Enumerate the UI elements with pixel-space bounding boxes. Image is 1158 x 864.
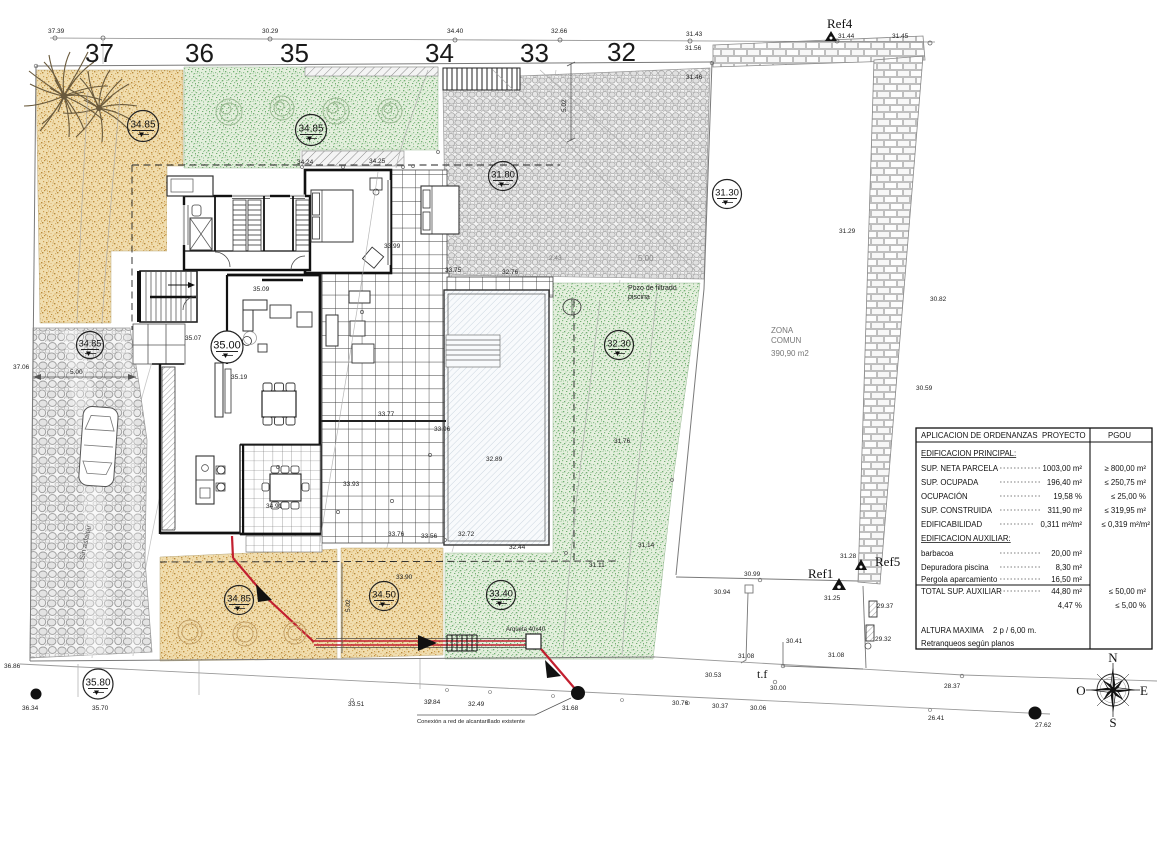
svg-text:30.29: 30.29 <box>262 28 279 35</box>
svg-text:32.30: 32.30 <box>607 339 631 350</box>
svg-text:Depuradora piscina: Depuradora piscina <box>921 563 989 572</box>
svg-text:36.86: 36.86 <box>4 663 21 670</box>
svg-text:33: 33 <box>520 38 549 68</box>
svg-text:34.91: 34.91 <box>266 503 283 510</box>
svg-text:SUP. CONSTRUIDA: SUP. CONSTRUIDA <box>921 506 993 515</box>
svg-text:TOTAL SUP. AUXILIAR: TOTAL SUP. AUXILIAR <box>921 587 1002 596</box>
svg-text:31.68: 31.68 <box>562 705 579 712</box>
svg-text:27.62: 27.62 <box>1035 722 1052 729</box>
svg-text:31.56: 31.56 <box>685 45 702 52</box>
svg-text:34.24: 34.24 <box>297 159 314 166</box>
svg-text:31.28: 31.28 <box>840 553 857 560</box>
svg-text:34.85: 34.85 <box>79 339 102 349</box>
svg-text:32.66: 32.66 <box>551 28 568 35</box>
svg-text:31.08: 31.08 <box>828 652 845 659</box>
svg-text:≤ 319,95 m²: ≤ 319,95 m² <box>1104 506 1146 515</box>
svg-text:5.00: 5.00 <box>70 369 83 376</box>
svg-text:35.19: 35.19 <box>231 374 248 381</box>
svg-text:N: N <box>1108 650 1118 665</box>
svg-text:34: 34 <box>425 38 454 68</box>
svg-text:31.45: 31.45 <box>892 33 909 40</box>
svg-text:PGOU: PGOU <box>1108 431 1131 440</box>
svg-text:31.43: 31.43 <box>686 31 703 38</box>
svg-text:2 p / 6,00 m.: 2 p / 6,00 m. <box>993 626 1036 635</box>
svg-text:30.59: 30.59 <box>916 385 933 392</box>
svg-text:Ref1: Ref1 <box>808 566 833 581</box>
svg-text:5.00: 5.00 <box>638 254 654 263</box>
svg-text:33.96: 33.96 <box>434 426 451 433</box>
svg-text:33.75: 33.75 <box>445 267 462 274</box>
svg-text:29.32: 29.32 <box>875 636 892 643</box>
svg-text:APLICACION DE ORDENANZAS: APLICACION DE ORDENANZAS <box>921 431 1038 440</box>
svg-text:30.00: 30.00 <box>770 685 787 692</box>
svg-text:30.06: 30.06 <box>750 705 767 712</box>
svg-text:PROYECTO: PROYECTO <box>1042 431 1086 440</box>
svg-text:2.43: 2.43 <box>549 255 562 262</box>
svg-text:30.76: 30.76 <box>672 700 689 707</box>
svg-text:5.02: 5.02 <box>345 599 352 612</box>
svg-text:EDIFICACION PRINCIPAL:: EDIFICACION PRINCIPAL: <box>921 449 1016 458</box>
svg-text:≤ 50,00 m²: ≤ 50,00 m² <box>1109 587 1147 596</box>
svg-text:33.76: 33.76 <box>388 531 405 538</box>
svg-text:33.77: 33.77 <box>378 411 395 418</box>
svg-text:Conexión a red de alcantarilla: Conexión a red de alcantarillado existen… <box>417 719 525 725</box>
svg-text:30.53: 30.53 <box>705 672 722 679</box>
svg-text:4,47 %: 4,47 % <box>1058 601 1082 610</box>
svg-text:44,80 m²: 44,80 m² <box>1051 587 1082 596</box>
svg-text:≤ 0,319 m²/m²: ≤ 0,319 m²/m² <box>1102 520 1151 529</box>
svg-text:Arqueta 40x40: Arqueta 40x40 <box>506 627 546 633</box>
svg-text:31.11: 31.11 <box>589 562 605 569</box>
svg-text:OCUPACIÓN: OCUPACIÓN <box>921 492 968 501</box>
svg-text:30.82: 30.82 <box>930 296 947 303</box>
svg-text:Ref4: Ref4 <box>827 16 853 31</box>
svg-text:35: 35 <box>280 38 309 68</box>
svg-text:34.25: 34.25 <box>369 158 386 165</box>
svg-text:34.85: 34.85 <box>298 124 323 135</box>
svg-text:5.02: 5.02 <box>561 99 568 112</box>
svg-text:EDIFICABILIDAD: EDIFICABILIDAD <box>921 520 982 529</box>
svg-text:35.09: 35.09 <box>253 286 270 293</box>
svg-text:31.80: 31.80 <box>491 170 515 181</box>
svg-text:31.44: 31.44 <box>838 33 855 40</box>
svg-text:34.40: 34.40 <box>447 28 464 35</box>
svg-text:Pergola aparcamiento: Pergola aparcamiento <box>921 575 998 584</box>
svg-text:SUP. NETA PARCELA: SUP. NETA PARCELA <box>921 464 999 473</box>
svg-text:34.85: 34.85 <box>227 594 251 605</box>
svg-text:37.06: 37.06 <box>13 364 30 371</box>
svg-text:0,311 m²/m²: 0,311 m²/m² <box>1041 520 1083 529</box>
svg-text:33.93: 33.93 <box>343 481 360 488</box>
svg-text:≤ 250,75 m²: ≤ 250,75 m² <box>1104 478 1146 487</box>
svg-text:35.00: 35.00 <box>213 340 241 352</box>
svg-text:20,00 m²: 20,00 m² <box>1051 549 1082 558</box>
svg-text:30.94: 30.94 <box>714 589 731 596</box>
svg-text:37: 37 <box>85 38 114 68</box>
svg-text:32.72: 32.72 <box>458 531 475 538</box>
svg-text:32.76: 32.76 <box>502 269 519 276</box>
svg-text:Ref5: Ref5 <box>875 554 900 569</box>
svg-text:19,58 %: 19,58 % <box>1053 492 1082 501</box>
svg-text:barbacoa: barbacoa <box>921 549 954 558</box>
svg-text:32.84: 32.84 <box>424 699 441 706</box>
svg-text:28.37: 28.37 <box>944 683 961 690</box>
svg-text:33.40: 33.40 <box>489 589 513 600</box>
svg-text:33.99: 33.99 <box>384 243 401 250</box>
svg-text:30.41: 30.41 <box>786 638 803 645</box>
svg-text:31.29: 31.29 <box>839 228 856 235</box>
svg-text:SUP. OCUPADA: SUP. OCUPADA <box>921 478 979 487</box>
svg-text:196,40 m²: 196,40 m² <box>1047 478 1083 487</box>
svg-text:33.90: 33.90 <box>396 574 413 581</box>
svg-text:O: O <box>1076 683 1085 698</box>
svg-text:35.07: 35.07 <box>185 335 202 342</box>
svg-text:32: 32 <box>607 37 636 67</box>
svg-text:≤ 25,00 %: ≤ 25,00 % <box>1111 492 1146 501</box>
svg-text:≥ 800,00 m²: ≥ 800,00 m² <box>1104 464 1146 473</box>
svg-text:EDIFICACION AUXILIAR:: EDIFICACION AUXILIAR: <box>921 534 1011 543</box>
svg-text:36.34: 36.34 <box>22 705 39 712</box>
svg-text:26.41: 26.41 <box>928 715 945 722</box>
svg-text:≤ 5,00 %: ≤ 5,00 % <box>1115 601 1146 610</box>
svg-text:37.39: 37.39 <box>48 28 65 35</box>
svg-text:30.37: 30.37 <box>712 703 729 710</box>
svg-text:31.46: 31.46 <box>686 74 703 81</box>
svg-text:34.85: 34.85 <box>130 120 155 131</box>
svg-text:34.50: 34.50 <box>372 590 396 601</box>
svg-text:31.76: 31.76 <box>614 438 631 445</box>
svg-text:COMUN: COMUN <box>771 336 801 345</box>
svg-text:ZONA: ZONA <box>771 326 794 335</box>
svg-text:33.56: 33.56 <box>421 533 438 540</box>
svg-text:35.80: 35.80 <box>85 678 110 689</box>
svg-text:Retranqueos según planos: Retranqueos según planos <box>921 639 1014 648</box>
svg-text:30.99: 30.99 <box>744 571 761 578</box>
svg-text:32.89: 32.89 <box>486 456 503 463</box>
svg-text:35.70: 35.70 <box>92 705 109 712</box>
svg-text:31.14: 31.14 <box>638 542 655 549</box>
svg-text:32.44: 32.44 <box>509 544 526 551</box>
svg-text:31.08: 31.08 <box>738 653 755 660</box>
svg-text:311,90 m²: 311,90 m² <box>1047 506 1082 515</box>
svg-text:31.30: 31.30 <box>715 188 739 199</box>
svg-text:piscina: piscina <box>628 294 650 301</box>
svg-text:36: 36 <box>185 38 214 68</box>
svg-text:33.51: 33.51 <box>348 701 365 708</box>
svg-text:8,30 m²: 8,30 m² <box>1056 563 1083 572</box>
svg-text:1003,00 m²: 1003,00 m² <box>1043 464 1083 473</box>
svg-text:16,50 m²: 16,50 m² <box>1051 575 1082 584</box>
svg-text:32.49: 32.49 <box>468 701 485 708</box>
svg-text:Pozo de filtrado: Pozo de filtrado <box>628 285 677 292</box>
svg-text:t.f: t.f <box>757 667 767 681</box>
svg-text:E: E <box>1140 683 1148 698</box>
svg-text:ALTURA MAXIMA: ALTURA MAXIMA <box>921 626 984 635</box>
svg-text:S: S <box>1109 715 1116 730</box>
svg-text:31.25: 31.25 <box>824 595 841 602</box>
svg-text:390,90 m2: 390,90 m2 <box>771 349 809 358</box>
svg-text:29.37: 29.37 <box>877 603 894 610</box>
